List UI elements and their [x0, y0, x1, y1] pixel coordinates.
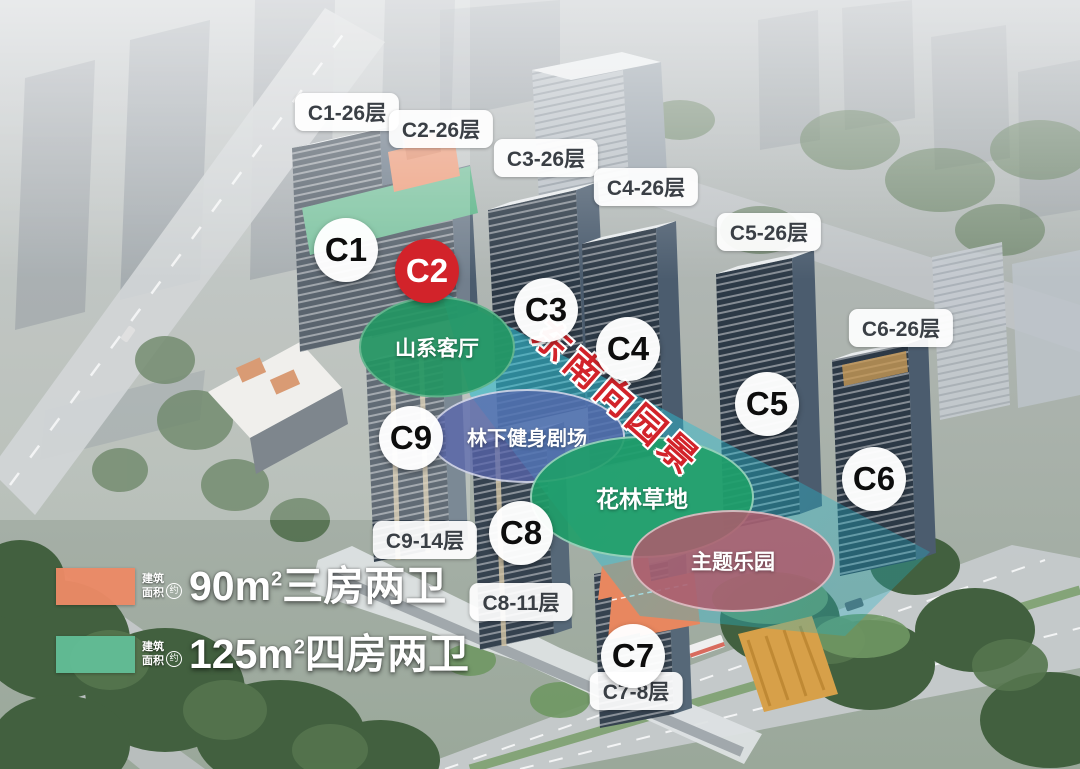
site-plan: C1-26层 C2-26层 C3-26层 C4-26层 C5-26层 C6-26…: [0, 0, 1080, 769]
building-marker-c7: C7: [601, 624, 665, 688]
legend-approx-badge: 约: [166, 651, 182, 667]
building-marker-c1: C1: [314, 218, 378, 282]
legend-prefix-90: 建筑 面积 约: [142, 573, 182, 599]
legend-swatch-green: [56, 636, 135, 673]
floor-label-c6: C6-26层: [849, 309, 953, 347]
legend-row-90sqm: 建筑 面积 约 90m2三房两卫: [56, 566, 446, 607]
legend-text-125: 125m2四房两卫: [189, 634, 469, 675]
building-marker-c2: C2: [395, 239, 459, 303]
legend-row-125sqm: 建筑 面积 约 125m2四房两卫: [56, 634, 469, 675]
building-marker-c5: C5: [735, 372, 799, 436]
amenity-mountain-living-room: 山系客厅: [359, 297, 515, 398]
floor-label-c4: C4-26层: [594, 168, 698, 206]
building-marker-c4: C4: [596, 317, 660, 381]
building-marker-c3: C3: [514, 278, 578, 342]
floor-label-c1: C1-26层: [295, 93, 399, 131]
building-marker-c8: C8: [489, 501, 553, 565]
building-marker-c9: C9: [379, 406, 443, 470]
building-marker-c6: C6: [842, 447, 906, 511]
amenity-theme-park: 主题乐园: [631, 510, 835, 612]
legend-prefix-125: 建筑 面积 约: [142, 641, 182, 667]
legend-approx-badge: 约: [166, 583, 182, 599]
legend-prefix-line1: 建筑: [142, 641, 164, 654]
floor-label-c9: C9-14层: [373, 521, 477, 559]
legend-prefix-line2: 面积: [142, 587, 164, 600]
floor-label-c8: C8-11层: [469, 583, 572, 621]
legend-swatch-orange: [56, 568, 135, 605]
legend-prefix-line2: 面积: [142, 655, 164, 668]
floor-label-c3: C3-26层: [494, 139, 598, 177]
floor-label-c5: C5-26层: [717, 213, 821, 251]
legend-text-90: 90m2三房两卫: [189, 566, 446, 607]
legend-prefix-line1: 建筑: [142, 573, 164, 586]
floor-label-c2: C2-26层: [389, 110, 493, 148]
